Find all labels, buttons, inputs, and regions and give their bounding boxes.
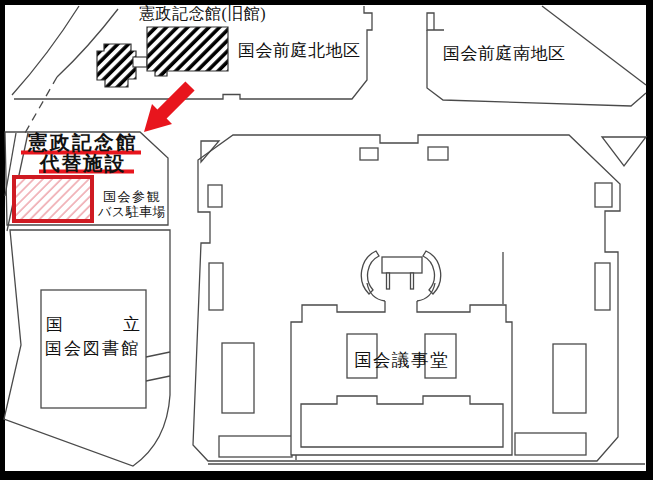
label-library-kokuritsu-2: 立 [123, 315, 140, 334]
entrance-pillar [387, 273, 390, 289]
small-building [595, 183, 612, 207]
label-library: 国会図書館 [45, 339, 140, 358]
label-diet-building: 国会議事堂 [354, 350, 449, 370]
label-bus-parking-2: バス駐車場 [97, 204, 166, 219]
entrance-pillar [411, 273, 414, 289]
small-building [595, 263, 610, 310]
small-building [208, 185, 222, 207]
small-building [219, 436, 292, 457]
label-bus-parking-1: 国会参観 [103, 189, 161, 204]
small-building [360, 148, 378, 160]
label-south-garden: 国会前庭南地区 [443, 44, 566, 63]
site-map: 憲政記念館(旧館) 国会前庭北地区 国会前庭南地区 憲政記念館 代替施設 国会参… [0, 0, 653, 480]
label-north-garden: 国会前庭北地区 [238, 41, 361, 60]
small-building [515, 433, 586, 455]
diet-south-courtyard [301, 396, 503, 447]
label-kensei-old: 憲政記念館(旧館) [139, 5, 266, 23]
building-connector [133, 57, 147, 67]
map-svg: 憲政記念館(旧館) 国会前庭北地区 国会前庭南地区 憲政記念館 代替施設 国会参… [0, 0, 653, 480]
entrance-forecourt [382, 257, 422, 273]
small-building [222, 343, 254, 413]
label-library-kokuritsu-1: 国 [46, 315, 63, 334]
small-building [553, 344, 586, 413]
label-kensei-new-1: 憲政記念館 [27, 131, 138, 153]
hatched-building-east [147, 27, 228, 76]
replacement-facility-site [14, 177, 92, 221]
small-building [209, 263, 223, 310]
small-building [428, 147, 448, 160]
label-kensei-new-2: 代替施設 [39, 153, 126, 174]
